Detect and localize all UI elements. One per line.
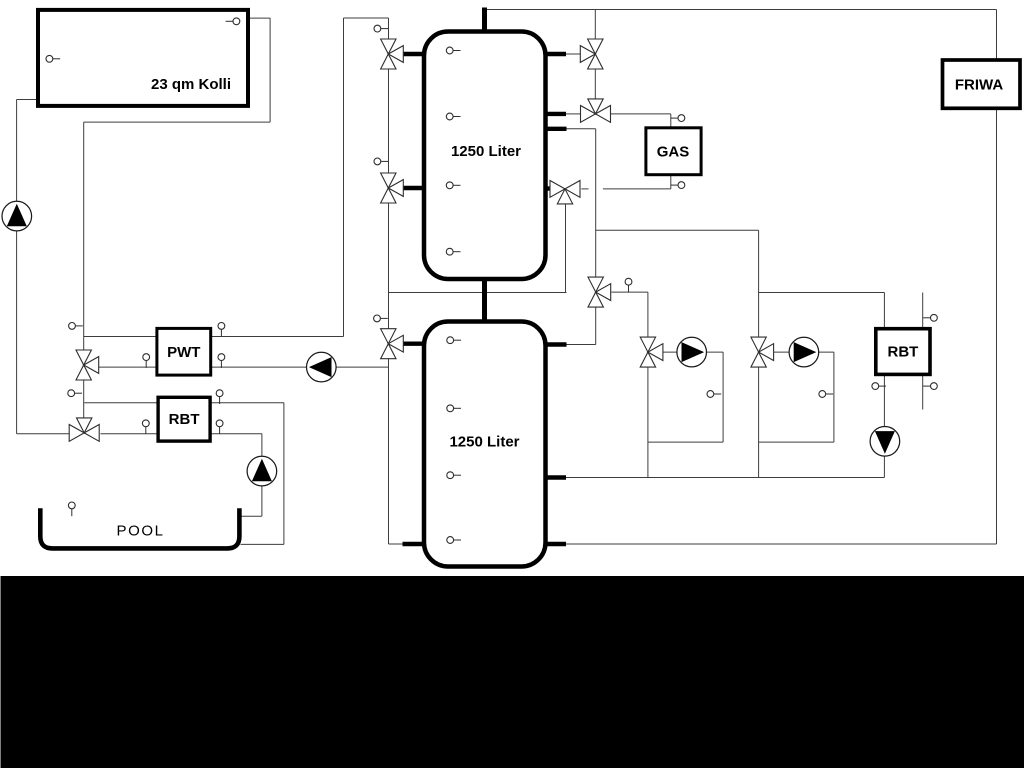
svg-text:RBT: RBT [887, 344, 918, 361]
svg-text:POOL: POOL [117, 523, 165, 540]
svg-text:PWT: PWT [167, 344, 200, 361]
svg-text:GAS: GAS [657, 144, 690, 161]
svg-text:1250 Liter: 1250 Liter [451, 143, 521, 160]
svg-text:FRIWA: FRIWA [955, 76, 1003, 93]
svg-text:RBT: RBT [169, 411, 200, 428]
svg-text:1250 Liter: 1250 Liter [449, 433, 519, 450]
svg-text:23 qm Kolli: 23 qm Kolli [151, 76, 231, 93]
